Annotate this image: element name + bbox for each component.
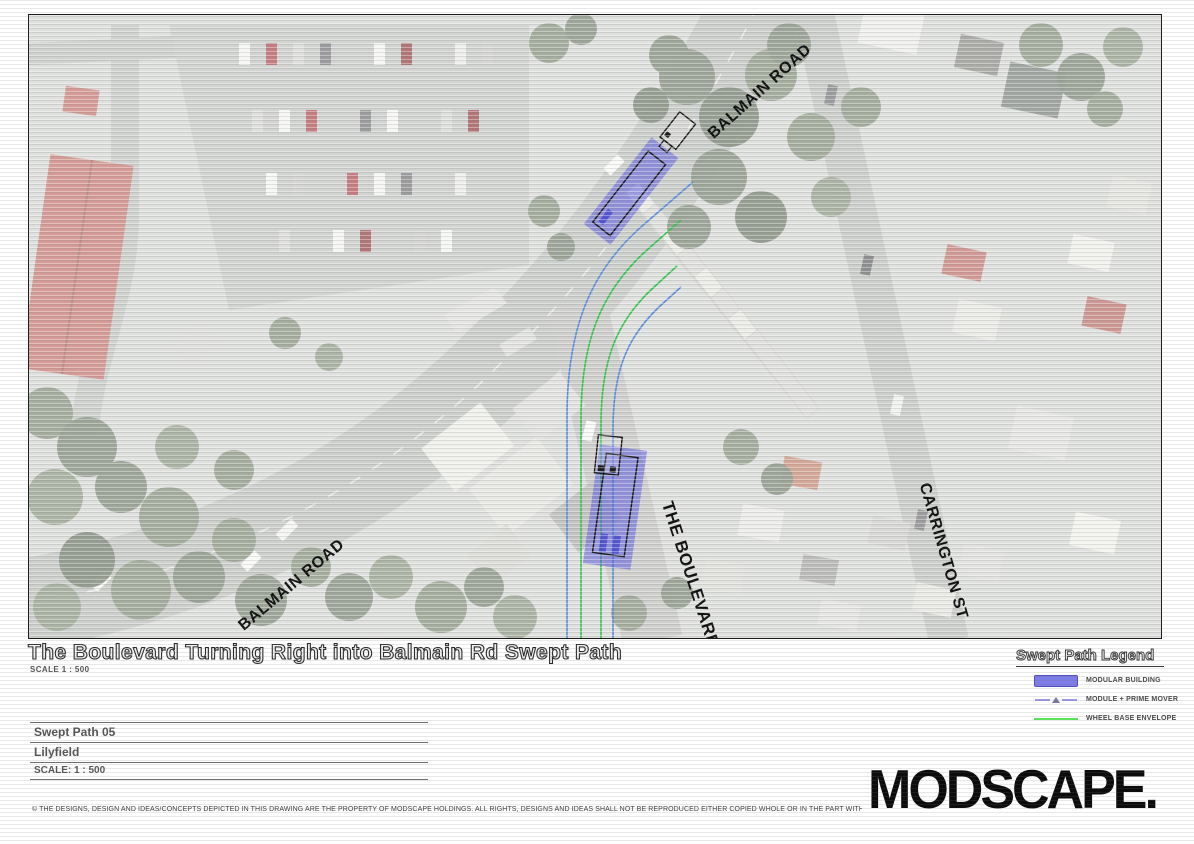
legend-item-label: MODULAR BUILDING bbox=[1086, 677, 1161, 684]
drawing-title: The Boulevard Turning Right into Balmain… bbox=[28, 641, 622, 665]
swept-path-legend: Swept Path Legend MODULAR BUILDING MODUL… bbox=[1016, 647, 1164, 732]
legend-item-modular-building: MODULAR BUILDING bbox=[1034, 675, 1164, 686]
title-block-scale: SCALE: 1 : 500 bbox=[30, 762, 428, 780]
aerial-map: BALMAIN ROAD BALMAIN ROAD THE BOULEVARDE… bbox=[28, 14, 1162, 639]
title-block: Swept Path 05 Lilyfield SCALE: 1 : 500 bbox=[30, 722, 428, 780]
legend-item-module-prime-mover: MODULE + PRIME MOVER bbox=[1034, 694, 1164, 705]
title-block-location: Lilyfield bbox=[30, 742, 428, 762]
aerial-map-canvas bbox=[29, 15, 1161, 638]
legend-title: Swept Path Legend bbox=[1016, 647, 1164, 667]
drawing-title-scale: SCALE 1 : 500 bbox=[30, 665, 89, 674]
prime-mover-start bbox=[594, 435, 622, 475]
legend-item-wheel-base-envelope: WHEEL BASE ENVELOPE bbox=[1034, 713, 1164, 724]
legend-item-label: MODULE + PRIME MOVER bbox=[1086, 696, 1178, 703]
copyright-disclaimer: © THE DESIGNS, DESIGN AND IDEAS/CONCEPTS… bbox=[32, 806, 862, 813]
title-block-drawing-name: Swept Path 05 bbox=[30, 722, 428, 742]
wheel-base-green-line-icon bbox=[1034, 718, 1078, 720]
modular-building-swatch-icon bbox=[1034, 675, 1078, 687]
modscape-logo: MODSCAPE. bbox=[868, 758, 1156, 822]
legend-item-label: WHEEL BASE ENVELOPE bbox=[1086, 715, 1176, 722]
